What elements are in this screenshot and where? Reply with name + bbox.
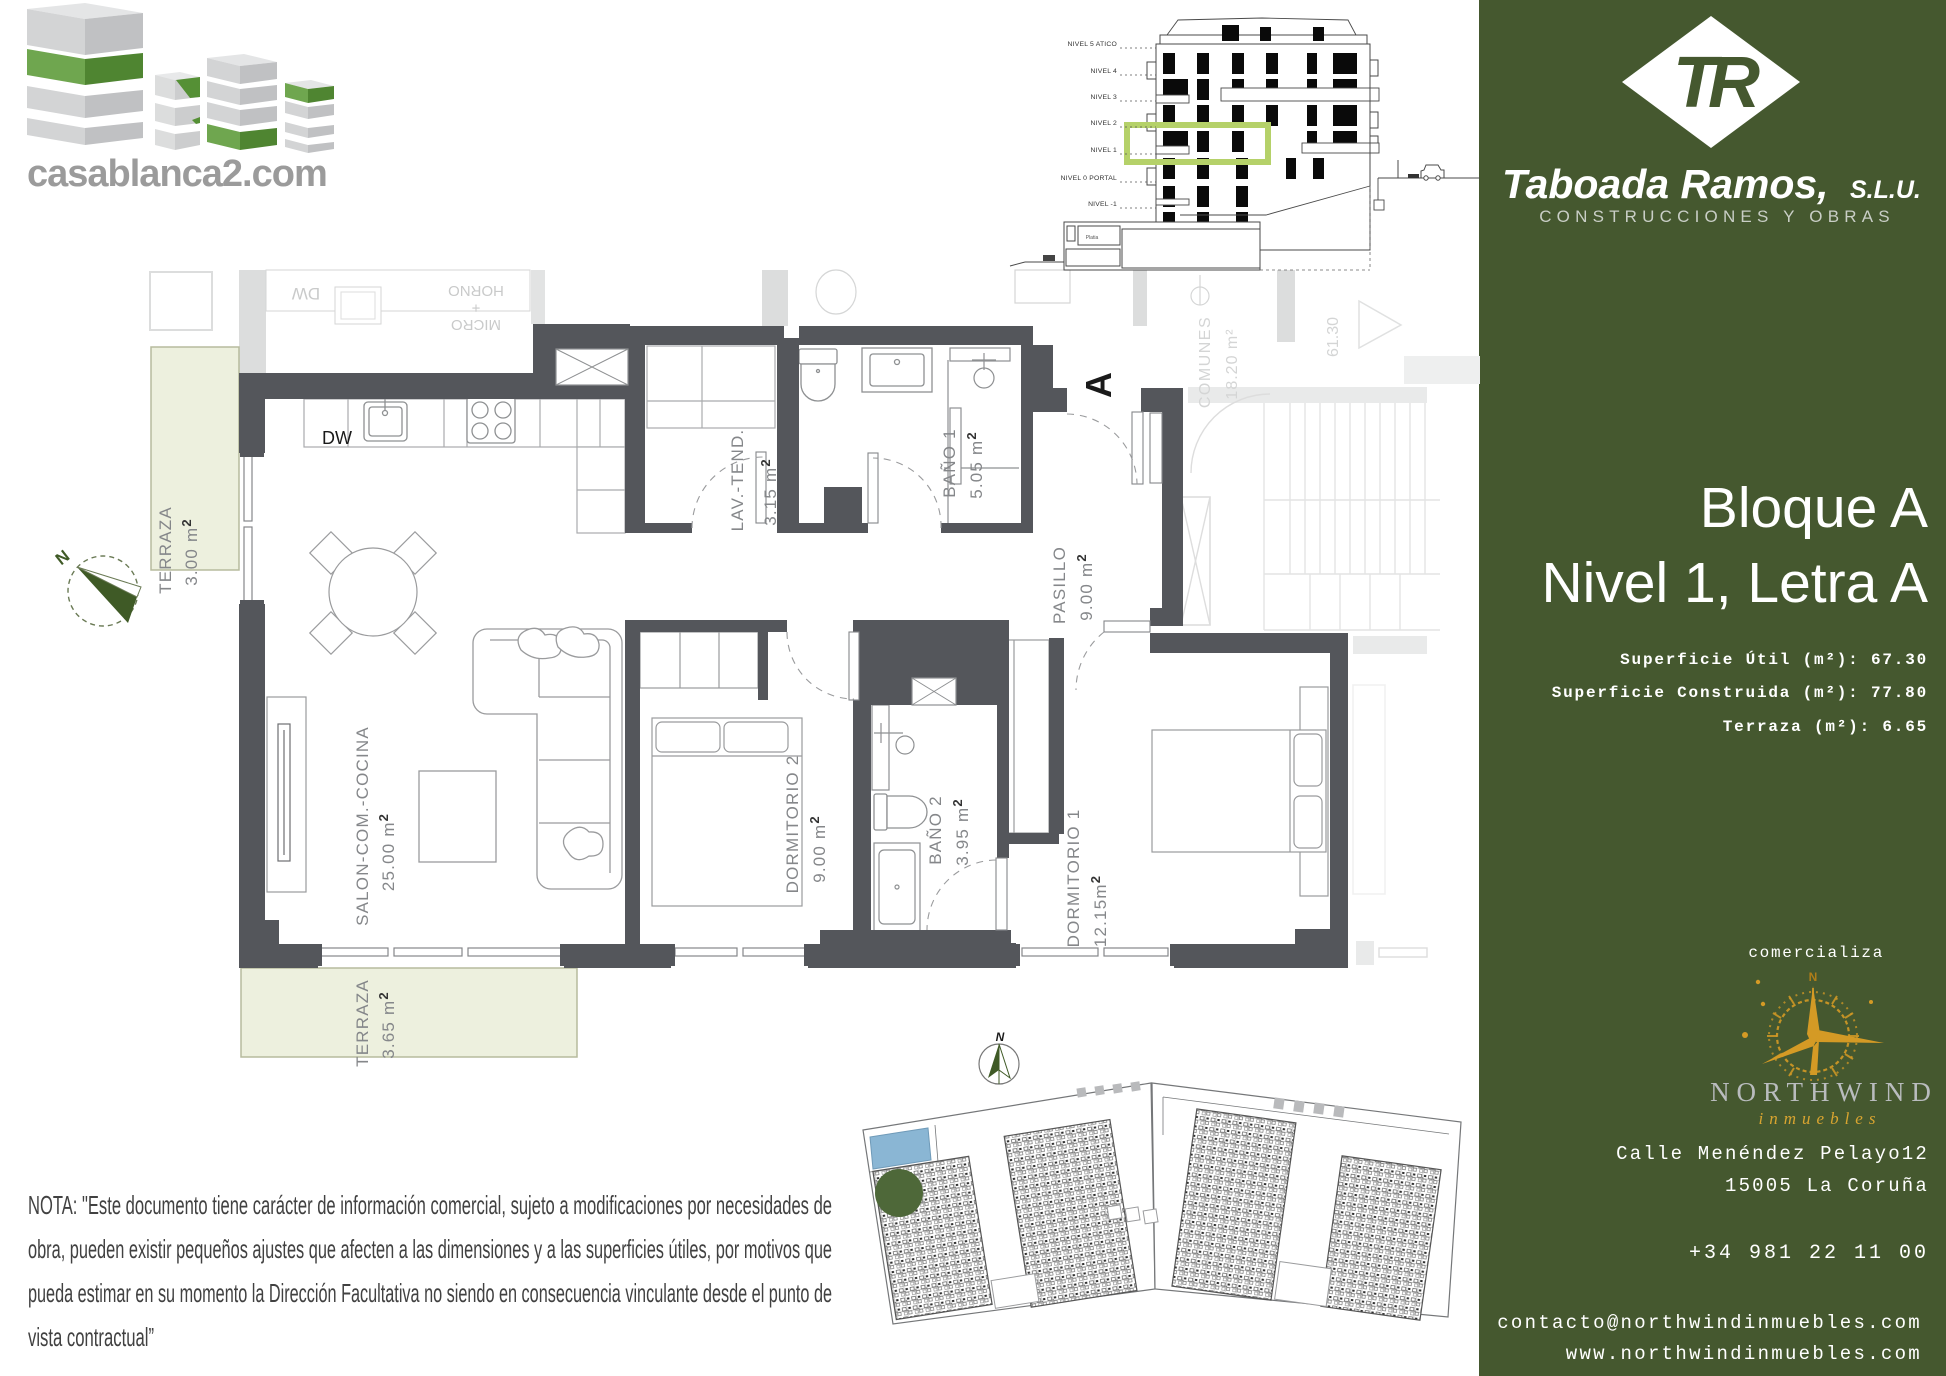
svg-text:Platia: Platia [1086,235,1099,241]
svg-text:Nivel 1, Letra A: Nivel 1, Letra A [1541,551,1928,615]
svg-text:NIVEL 1: NIVEL 1 [1091,147,1117,154]
svg-text:NORTHWIND: NORTHWIND [1710,1077,1938,1107]
svg-text:contacto@northwindinmuebles.co: contacto@northwindinmuebles.com [1497,1312,1922,1334]
svg-text:NIVEL 2: NIVEL 2 [1091,120,1117,127]
svg-text:DW: DW [292,284,320,303]
svg-text:MICRO: MICRO [451,316,501,333]
svg-text:comercializa: comercializa [1748,944,1884,962]
svg-text:Taboada Ramos,: Taboada Ramos, [1502,161,1829,207]
svg-text:15005 La Coruña: 15005 La Coruña [1725,1175,1929,1197]
svg-text:pueda estimar en su momento la: pueda estimar en su momento la Dirección… [28,1278,832,1308]
svg-text:HORNO: HORNO [448,282,504,299]
svg-text:NIVEL 0 PORTAL: NIVEL 0 PORTAL [1061,175,1117,182]
svg-text:TERRAZA: TERRAZA [156,506,175,594]
svg-text:3.15 m2: 3.15 m2 [758,458,780,526]
svg-text:S.L.U.: S.L.U. [1850,176,1921,204]
svg-text:NIVEL 5 ATICO: NIVEL 5 ATICO [1068,41,1117,48]
svg-text:LAV.-TEND.: LAV.-TEND. [728,429,747,532]
svg-text:CONSTRUCCIONES Y OBRAS: CONSTRUCCIONES Y OBRAS [1539,207,1895,226]
svg-text:+34 981 22 11 00: +34 981 22 11 00 [1689,1242,1929,1265]
svg-text:vista contractual”: vista contractual” [28,1322,154,1352]
svg-text:NIVEL 3: NIVEL 3 [1091,94,1117,101]
svg-text:TR: TR [1673,43,1760,123]
svg-text:casablanca2.com: casablanca2.com [27,153,327,195]
svg-text:SALON-COM.-COCINA: SALON-COM.-COCINA [353,726,372,926]
svg-text:+: + [471,299,480,316]
svg-text:3.00 m2: 3.00 m2 [179,518,201,586]
svg-text:3.95 m2: 3.95 m2 [950,798,972,866]
svg-text:Superficie Útil (m²): 67.30: Superficie Útil (m²): 67.30 [1620,650,1928,669]
svg-text:obra, pueden existir pequeños: obra, pueden existir pequeños ajustes qu… [28,1234,832,1264]
svg-text:25.00 m2: 25.00 m2 [376,813,398,891]
svg-text:NIVEL 4: NIVEL 4 [1091,68,1117,75]
svg-text:NIVEL -1: NIVEL -1 [1088,201,1117,208]
svg-text:COMUNES: COMUNES [1197,316,1214,408]
svg-text:12.15m2: 12.15m2 [1088,875,1110,947]
svg-text:NOTA: "Este documento tiene ca: NOTA: "Este documento tiene carácter de … [28,1190,832,1220]
svg-text:Superficie Construida (m²): 77: Superficie Construida (m²): 77.80 [1552,684,1928,702]
svg-text:inmuebles: inmuebles [1759,1109,1882,1128]
svg-text:BAÑO 2: BAÑO 2 [926,795,945,865]
svg-text:www.northwindinmuebles.com: www.northwindinmuebles.com [1566,1343,1922,1365]
svg-text:DW: DW [322,428,352,448]
svg-text:5.05 m2: 5.05 m2 [964,431,986,499]
svg-text:TERRAZA: TERRAZA [353,979,372,1067]
svg-text:Terraza (m²): 6.65: Terraza (m²): 6.65 [1723,718,1928,736]
svg-text:Bloque A: Bloque A [1700,476,1928,540]
svg-text:Calle Menéndez Pelayo12: Calle Menéndez Pelayo12 [1616,1143,1929,1165]
svg-text:61.30: 61.30 [1325,317,1342,357]
svg-text:N: N [1809,970,1818,984]
svg-text:18.20 m²: 18.20 m² [1224,328,1241,399]
svg-text:9.00 m2: 9.00 m2 [807,815,829,883]
svg-text:BAÑO 1: BAÑO 1 [940,428,959,498]
svg-text:PASILLO: PASILLO [1050,546,1069,624]
svg-text:DORMITORIO 1: DORMITORIO 1 [1064,809,1083,948]
svg-text:9.00 m2: 9.00 m2 [1074,553,1096,621]
svg-text:3.65 m2: 3.65 m2 [376,991,398,1059]
svg-text:N: N [996,1030,1005,1044]
svg-text:A: A [1078,372,1119,398]
svg-text:DORMITORIO 2: DORMITORIO 2 [783,755,802,894]
